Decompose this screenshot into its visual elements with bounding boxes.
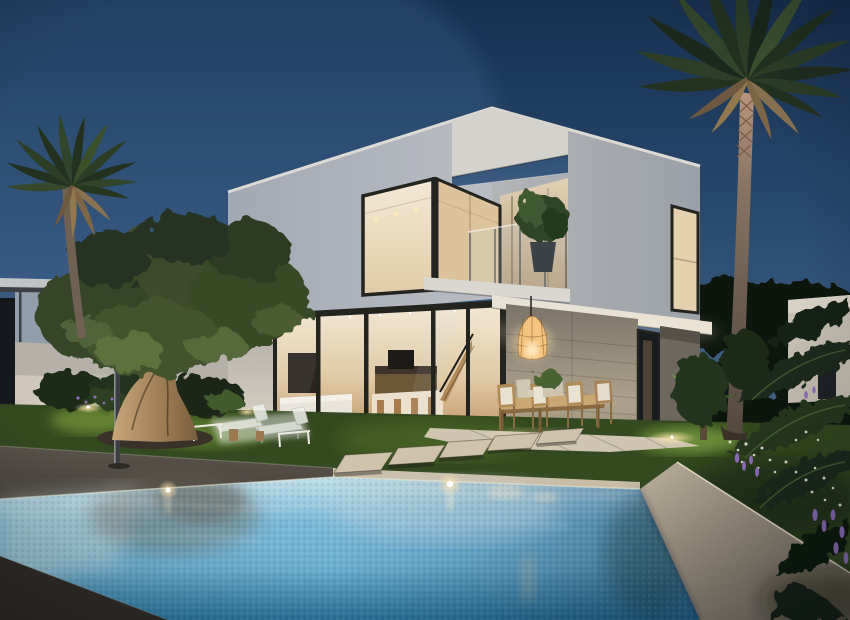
- vignette: [0, 0, 850, 620]
- villa-dusk-render: Render of a modern two-storey white vill…: [0, 0, 850, 620]
- render-canvas: [0, 0, 850, 620]
